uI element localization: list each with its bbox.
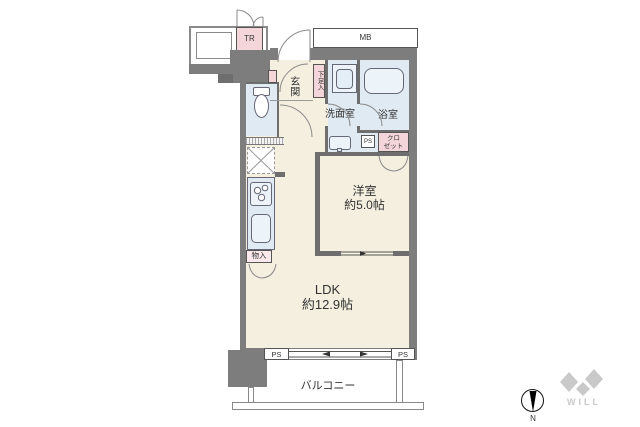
toilet-bowl xyxy=(254,94,269,118)
entrance-label: 玄関 xyxy=(287,68,299,104)
outer-corridor-inner xyxy=(196,32,232,59)
washroom-wall-a xyxy=(325,60,328,104)
closet-label-line1: クロ xyxy=(387,135,400,142)
pipe-space-right: PS xyxy=(391,348,415,360)
pipe-space-left-label: PS xyxy=(271,350,281,359)
balcony-window xyxy=(289,349,391,359)
washroom-wall-b xyxy=(325,126,328,152)
logo-diamond-2 xyxy=(576,382,590,396)
toilet-wall-right xyxy=(277,83,279,137)
compass-north-label: N xyxy=(525,414,541,423)
entrance-door-jamb xyxy=(270,48,278,60)
washing-machine xyxy=(336,69,353,89)
kitchen-sink xyxy=(251,214,271,243)
wall-right xyxy=(409,48,417,358)
lower-left-block xyxy=(228,350,267,387)
shoe-cabinet-label: 下足入 xyxy=(314,71,324,91)
western-room-wall-bottom-b xyxy=(393,251,409,256)
compass xyxy=(521,389,544,412)
balcony-railing xyxy=(232,402,424,410)
shoe-cabinet: 下足入 xyxy=(313,64,325,98)
ldk-name: LDK xyxy=(315,282,340,297)
porch-side-strip xyxy=(189,64,230,74)
western-room-label: 洋室 約5.0帖 xyxy=(320,184,409,212)
storage-box: 物入 xyxy=(246,250,272,263)
bathtub xyxy=(364,68,404,94)
wall-top xyxy=(310,48,417,60)
pipe-space-upper-label: PS xyxy=(361,139,375,146)
storage-label: 物入 xyxy=(252,252,267,261)
balcony-support-right xyxy=(396,360,403,403)
balcony-support-left xyxy=(248,387,254,403)
bathroom-label: 浴室 xyxy=(368,110,408,122)
vanity-tap xyxy=(337,148,342,152)
ldk-label: LDK 約12.9帖 xyxy=(246,282,409,313)
western-room-name: 洋室 xyxy=(352,184,376,198)
floor-plan-canvas: MB TR 玄関 下足入 洗面室 浴室 PS クロ ゼット xyxy=(0,0,640,427)
ldk-size: 約12.9帖 xyxy=(302,297,353,312)
brand-logo-text: WILL xyxy=(558,397,610,408)
closet-label: クロ ゼット xyxy=(378,135,409,150)
trunk-room-label: TR xyxy=(236,34,263,43)
western-room-wall-bottom-a xyxy=(315,251,341,256)
hatched-strip xyxy=(246,137,284,145)
entrance-porch-block xyxy=(230,50,270,83)
porch-step xyxy=(218,74,233,83)
logo-diamond-1 xyxy=(560,372,578,392)
trunk-door-left-arc xyxy=(237,10,254,27)
logo-diamond-3 xyxy=(585,369,603,389)
wet-area-wall-bottom xyxy=(315,152,409,156)
pipe-space-right-label: PS xyxy=(398,350,408,359)
brand-logo-mark xyxy=(560,369,603,396)
entrance-door-arc xyxy=(278,30,310,62)
stove xyxy=(250,182,272,206)
entrance-cabinet xyxy=(268,70,277,83)
washroom-label: 洗面室 xyxy=(318,109,362,121)
balcony-label: バルコニー xyxy=(266,380,390,393)
kitchen-wall-stub xyxy=(275,172,285,177)
pipe-space-left: PS xyxy=(264,348,289,360)
closet-label-line2: ゼット xyxy=(384,143,404,150)
refrigerator-space xyxy=(247,147,275,174)
meter-box-label: MB xyxy=(313,33,418,42)
bath-divider-a xyxy=(357,60,360,104)
western-room-size: 約5.0帖 xyxy=(344,198,385,212)
